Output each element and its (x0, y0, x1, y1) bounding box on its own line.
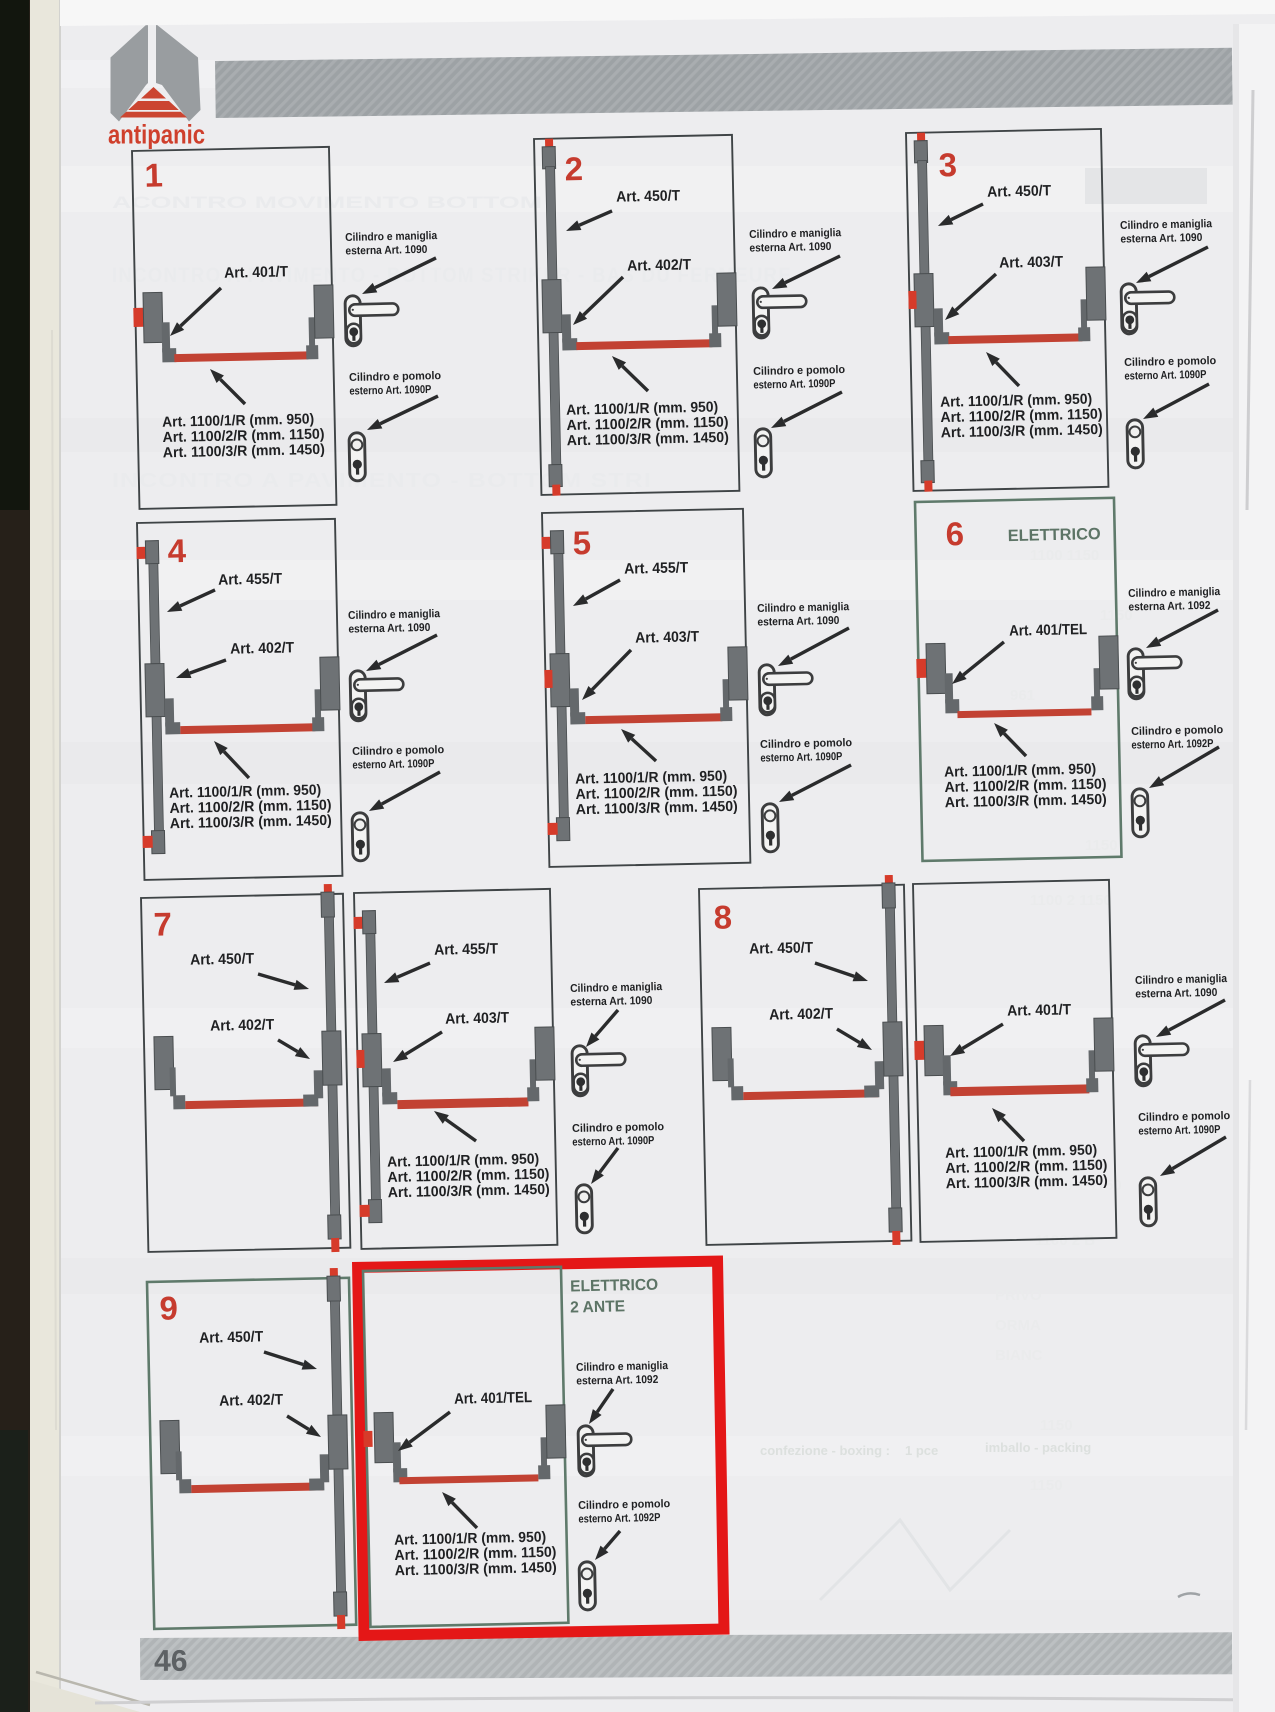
svg-text:Cilindro e maniglia: Cilindro e maniglia (757, 601, 850, 615)
svg-text:Cilindro e maniglia: Cilindro e maniglia (1120, 218, 1213, 232)
svg-text:8: 8 (713, 898, 732, 935)
svg-text:Cilindro e pomolo: Cilindro e pomolo (1124, 355, 1216, 369)
svg-text:Art. 1100/3/R (mm. 1450): Art. 1100/3/R (mm. 1450) (163, 442, 325, 461)
svg-text:esterno Art. 1092P: esterno Art. 1092P (578, 1512, 661, 1526)
svg-text:Cilindro e maniglia: Cilindro e maniglia (1135, 973, 1228, 987)
svg-text:Art. 401/T: Art. 401/T (224, 263, 288, 281)
svg-text:Art. 402/T: Art. 402/T (627, 256, 691, 274)
svg-text:esterna Art. 1090: esterna Art. 1090 (348, 622, 430, 636)
svg-text:esterno Art. 1090P: esterno Art. 1090P (760, 751, 843, 765)
svg-text:Art. 450/T: Art. 450/T (190, 950, 254, 968)
svg-text:Art. 455/T: Art. 455/T (218, 570, 282, 588)
svg-text:Art. 402/T: Art. 402/T (230, 639, 294, 657)
svg-text:Art. 450/T: Art. 450/T (616, 187, 680, 205)
svg-text:ACONTRO MOVIMENTO BOTTOM: ACONTRO MOVIMENTO BOTTOM (112, 193, 542, 212)
svg-text:BIANC: BIANC (995, 1347, 1043, 1364)
svg-text:Cilindro e maniglia: Cilindro e maniglia (1128, 586, 1221, 600)
svg-text:Art. 1100/3/R (mm. 1450): Art. 1100/3/R (mm. 1450) (395, 1560, 557, 1579)
svg-text:Art. 455/T: Art. 455/T (434, 940, 498, 958)
svg-text:esterno Art. 1090P: esterno Art. 1090P (349, 384, 432, 398)
svg-text:Art. 1100/3/R (mm. 1450): Art. 1100/3/R (mm. 1450) (576, 799, 738, 818)
svg-text:Cilindro e pomolo: Cilindro e pomolo (1138, 1110, 1230, 1124)
svg-text:1150: 1150 (1040, 1417, 1073, 1434)
svg-text:ELETTRICO: ELETTRICO (1008, 525, 1102, 545)
svg-text:confezione - boxing :: confezione - boxing : (760, 1443, 890, 1458)
svg-text:esterna Art. 1090: esterna Art. 1090 (1120, 232, 1202, 246)
svg-text:4: 4 (167, 532, 187, 569)
svg-text:Art. 402/T: Art. 402/T (219, 1391, 283, 1409)
svg-text:Art. 1100/3/R (mm. 1450): Art. 1100/3/R (mm. 1450) (388, 1182, 550, 1201)
svg-text:1 pce: 1 pce (905, 1443, 938, 1458)
svg-text:Cilindro e pomolo: Cilindro e pomolo (760, 737, 852, 751)
svg-text:Cilindro e maniglia: Cilindro e maniglia (570, 981, 663, 995)
svg-text:Art. 450/T: Art. 450/T (987, 182, 1051, 200)
svg-text:3: 3 (938, 146, 957, 183)
svg-text:1100 2 B: 1100 2 B (1035, 1232, 1095, 1249)
svg-text:PRIVO: PRIVO (995, 1287, 1042, 1304)
svg-text:Cilindro e pomolo: Cilindro e pomolo (349, 370, 441, 384)
svg-text:Art. 1100/3/R (mm. 1450): Art. 1100/3/R (mm. 1450) (567, 430, 729, 449)
svg-text:Cilindro e maniglia: Cilindro e maniglia (749, 227, 842, 241)
svg-text:Art. 1100/3/R (mm. 1450): Art. 1100/3/R (mm. 1450) (170, 813, 332, 832)
svg-text:1100 1150: 1100 1150 (1030, 547, 1099, 564)
svg-text:Art. 403/T: Art. 403/T (445, 1009, 509, 1027)
svg-text:Cilindro e pomolo: Cilindro e pomolo (352, 744, 444, 758)
svg-text:Art. 403/T: Art. 403/T (999, 253, 1063, 271)
svg-text:esterna Art. 1092: esterna Art. 1092 (576, 1374, 658, 1388)
svg-text:Cilindro e pomolo: Cilindro e pomolo (578, 1498, 670, 1512)
svg-text:9: 9 (159, 1289, 178, 1326)
svg-text:Art. 1100/3/R (mm. 1450): Art. 1100/3/R (mm. 1450) (945, 792, 1107, 811)
svg-text:esterna Art. 1090: esterna Art. 1090 (749, 241, 831, 255)
svg-text:Art. 401/T: Art. 401/T (1007, 1001, 1071, 1019)
svg-text:ORMA: ORMA (995, 1317, 1041, 1334)
svg-text:esterno Art. 1090P: esterno Art. 1090P (1138, 1124, 1221, 1138)
svg-text:antipanic: antipanic (108, 120, 205, 150)
svg-text:Cilindro e pomolo: Cilindro e pomolo (1131, 724, 1223, 738)
svg-text:esterno Art. 1090P: esterno Art. 1090P (1124, 369, 1207, 383)
svg-text:Art. 455/T: Art. 455/T (624, 559, 688, 577)
svg-text:2 ANTE: 2 ANTE (570, 1298, 626, 1316)
svg-text:ELETTRICO: ELETTRICO (570, 1277, 658, 1296)
svg-text:esterna Art. 1090: esterna Art. 1090 (570, 995, 652, 1009)
svg-text:Art. 1100/3/R (mm. 1450): Art. 1100/3/R (mm. 1450) (941, 422, 1103, 441)
svg-text:6: 6 (945, 515, 964, 552)
svg-text:INCONTRO A PAVIMENTO - BOTTOM: INCONTRO A PAVIMENTO - BOTTOM STRI (112, 470, 652, 492)
svg-text:Art. 1100/3/R (mm. 1450): Art. 1100/3/R (mm. 1450) (946, 1173, 1108, 1192)
svg-text:1150: 1150 (1030, 1477, 1063, 1494)
svg-text:1150: 1150 (1085, 837, 1118, 854)
svg-text:Art. 402/T: Art. 402/T (769, 1005, 833, 1023)
svg-text:961: 961 (1010, 687, 1035, 704)
svg-text:1100 2 1150: 1100 2 1150 (1030, 892, 1112, 909)
svg-text:imballo - packing: imballo - packing (985, 1440, 1091, 1455)
svg-text:Art. 450/T: Art. 450/T (749, 939, 813, 957)
svg-text:esterno Art. 1090P: esterno Art. 1090P (352, 758, 435, 772)
svg-text:Cilindro e maniglia: Cilindro e maniglia (345, 230, 438, 244)
svg-text:esterno Art. 1090P: esterno Art. 1090P (753, 378, 836, 392)
svg-text:esterna Art. 1092: esterna Art. 1092 (1128, 600, 1210, 614)
svg-text:esterna Art. 1090: esterna Art. 1090 (757, 615, 839, 629)
svg-text:Cilindro e maniglia: Cilindro e maniglia (348, 608, 441, 622)
svg-text:esterna Art. 1090: esterna Art. 1090 (1135, 987, 1217, 1001)
svg-text:Cilindro e pomolo: Cilindro e pomolo (572, 1121, 664, 1135)
svg-text:Art. 401/TEL: Art. 401/TEL (1009, 621, 1087, 640)
svg-text:esterna Art. 1090: esterna Art. 1090 (345, 244, 427, 258)
svg-text:Cilindro e maniglia: Cilindro e maniglia (576, 1360, 669, 1374)
svg-text:46: 46 (154, 1645, 188, 1678)
svg-text:2: 2 (564, 150, 583, 187)
svg-text:Cilindro e pomolo: Cilindro e pomolo (753, 364, 845, 378)
svg-text:Art. 403/T: Art. 403/T (635, 628, 699, 646)
svg-text:Art. 401/TEL: Art. 401/TEL (454, 1389, 532, 1408)
svg-text:7: 7 (153, 905, 172, 942)
svg-text:Art. 402/T: Art. 402/T (210, 1016, 274, 1034)
svg-text:5: 5 (572, 524, 591, 561)
svg-text:esterno Art. 1092P: esterno Art. 1092P (1131, 738, 1214, 752)
svg-text:1: 1 (144, 156, 163, 193)
svg-text:esterno Art. 1090P: esterno Art. 1090P (572, 1135, 655, 1149)
svg-text:Art. 450/T: Art. 450/T (199, 1328, 263, 1346)
